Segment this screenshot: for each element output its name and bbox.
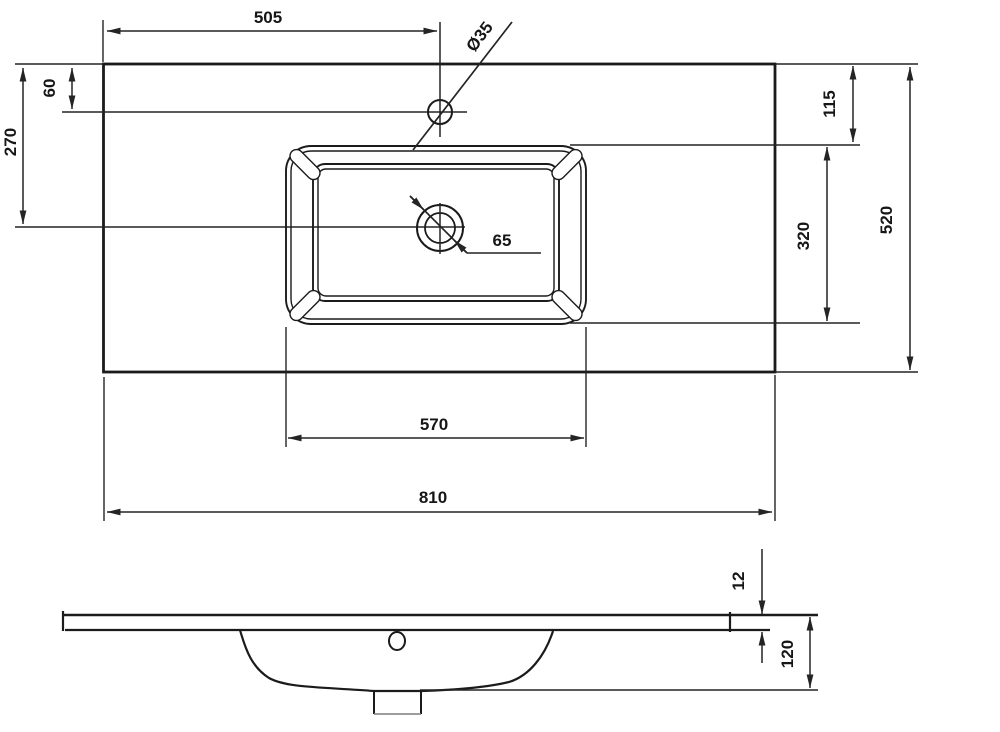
dim-505-label: 505 [254, 8, 282, 27]
hole-diameter-label: Ø35 [462, 18, 497, 55]
basin-outer-rim-inner-line [291, 151, 581, 319]
overflow-hole [389, 632, 405, 650]
technical-drawing-canvas: 505 Ø35 60 270 65 115 320 520 570 810 12… [0, 0, 1000, 732]
faucet-diameter-leader [413, 22, 512, 150]
side-view: 12 120 [63, 549, 818, 714]
dim-320-label: 320 [794, 222, 813, 250]
dim-810-label: 810 [419, 488, 447, 507]
dim-60-label: 60 [40, 79, 59, 98]
washbasin-drawing: 505 Ø35 60 270 65 115 320 520 570 810 12… [0, 0, 1000, 732]
drain-leader-arrow-lower [455, 241, 468, 254]
dim-520-label: 520 [877, 206, 896, 234]
basin-inner-rim-inner-line [318, 169, 554, 296]
basin-inner-rim [313, 164, 559, 301]
dim-570-label: 570 [420, 415, 448, 434]
basin-outer-rim [286, 146, 586, 324]
bowl-profile [240, 630, 553, 691]
top-view: 505 Ø35 60 270 65 115 320 520 570 810 [1, 8, 918, 521]
dim-120-label: 120 [778, 640, 797, 668]
dim-270-label: 270 [1, 128, 20, 156]
dim-65-label: 65 [493, 231, 512, 250]
dim-115-label: 115 [820, 90, 839, 117]
dim-12-label: 12 [729, 572, 748, 591]
drain-leader-arrow-upper [410, 196, 424, 210]
